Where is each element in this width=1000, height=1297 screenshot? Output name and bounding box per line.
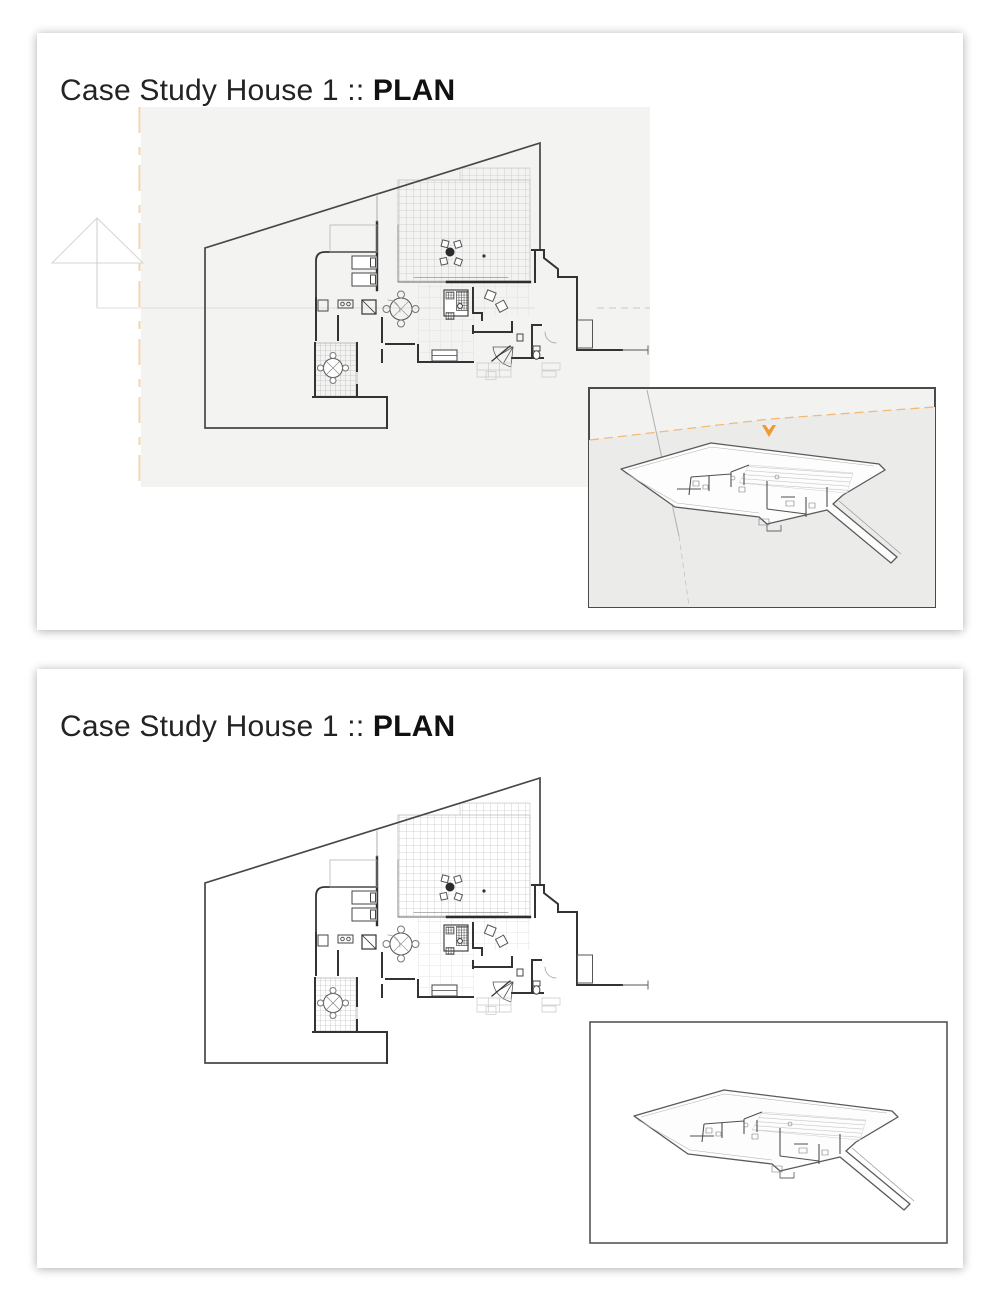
plan-viewport-1: [37, 33, 963, 630]
plan-viewport-2: [37, 669, 963, 1268]
plan-sheet-card-1: Case Study House 1 :: PLAN: [37, 33, 963, 630]
inset-3d-view-1: [589, 388, 935, 607]
page: Case Study House 1 :: PLAN: [0, 0, 1000, 1297]
viewport-background: [141, 107, 650, 487]
plan-sheet-card-2: Case Study House 1 :: PLAN: [37, 669, 963, 1268]
inset-3d-view-2: [590, 1022, 947, 1243]
